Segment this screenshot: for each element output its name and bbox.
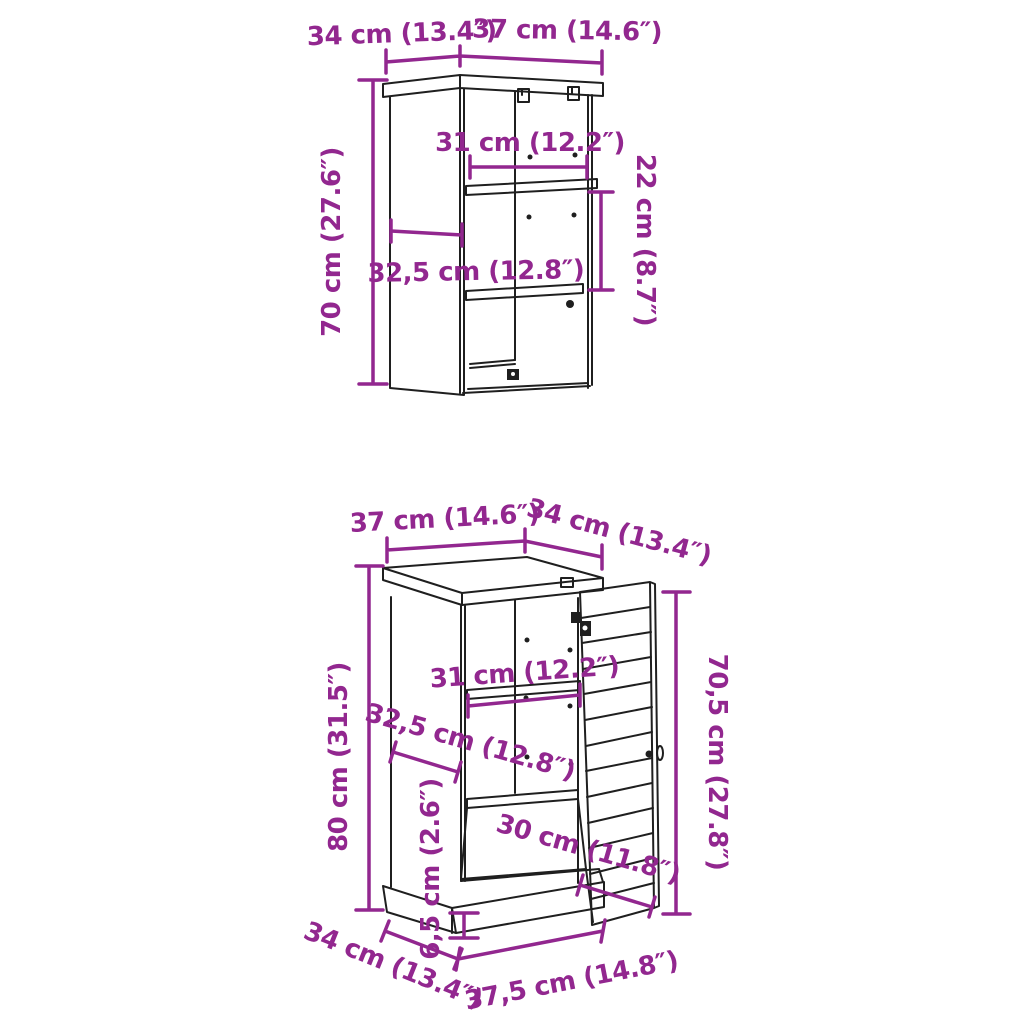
furniture-dimension-diagram: 34 cm (13.4″) 37 cm (14.6″) 70 cm (27.6″… bbox=[0, 0, 1024, 1024]
door-knob bbox=[646, 751, 653, 758]
dim-label-wall-height: 70 cm (27.6″) bbox=[317, 147, 347, 337]
diagram-canvas: 34 cm (13.4″) 37 cm (14.6″) 70 cm (27.6″… bbox=[0, 0, 1024, 1024]
fastener-knob-center bbox=[511, 372, 515, 376]
dim-label-wall-inner-width: 31 cm (12.2″) bbox=[435, 128, 625, 158]
dim-label-floor-top-depth: 34 cm (13.4″) bbox=[524, 493, 715, 571]
dim-label-door-height: 70,5 cm (27.8″) bbox=[702, 654, 732, 871]
wall-cabinet-drawing bbox=[383, 75, 603, 395]
dim-label-floor-inner-width: 31 cm (12.2″) bbox=[429, 651, 620, 694]
hinge-pin bbox=[583, 626, 588, 631]
floor-cabinet-top-panel bbox=[383, 557, 603, 605]
dim-line-base-width bbox=[456, 920, 605, 970]
wall-cabinet-middle-shelf bbox=[466, 179, 597, 195]
shelf-pin-holes bbox=[527, 153, 578, 220]
dim-label-base-width: 37,5 cm (14.8″) bbox=[462, 946, 681, 1017]
dim-label-floor-height: 80 cm (31.5″) bbox=[324, 662, 354, 852]
door-hinge-icon bbox=[571, 612, 580, 623]
shelf-support-knob bbox=[566, 300, 574, 308]
dim-label-wall-top-depth: 34 cm (13.4″) bbox=[306, 16, 497, 53]
dim-line-wall-top bbox=[386, 46, 602, 74]
dim-label-wall-inner-depth: 32,5 cm (12.8″) bbox=[367, 255, 584, 289]
wall-cabinet-bottom-rail bbox=[470, 360, 515, 368]
dim-label-plinth-height: 6,5 cm (2.6″) bbox=[416, 778, 446, 960]
dim-line-wall-inner-depth bbox=[391, 220, 462, 246]
dim-label-wall-compartment-height: 22 cm (8.7″) bbox=[630, 154, 660, 326]
door-knob-side bbox=[657, 746, 663, 760]
dim-line-floor-height bbox=[356, 566, 383, 910]
dim-line-wall-height bbox=[359, 80, 387, 384]
dim-line-wall-inner-width bbox=[470, 156, 587, 178]
dim-label-wall-top-width: 37 cm (14.6″) bbox=[472, 14, 662, 47]
floor-cabinet-bottom-shelf bbox=[467, 790, 578, 808]
floor-cabinet-dimension-labels: 37 cm (14.6″) 34 cm (13.4″) 80 cm (31.5″… bbox=[299, 493, 732, 1016]
dim-label-floor-top-width: 37 cm (14.6″) bbox=[349, 499, 540, 539]
